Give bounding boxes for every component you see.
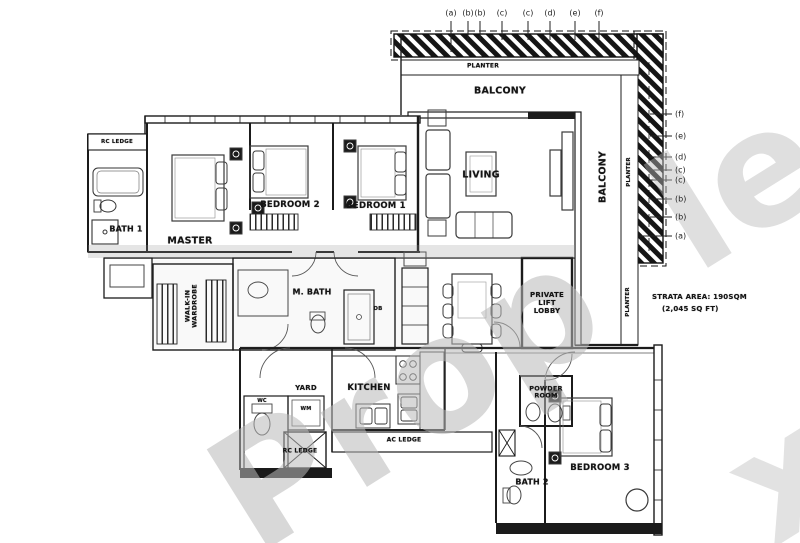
callout-top-d: (d) <box>544 9 555 18</box>
callout-top-e: (e) <box>569 9 580 18</box>
label-kitchen: KITCHEN <box>347 384 390 394</box>
label-planter-top: PLANTER <box>467 64 499 71</box>
label-wc: WC <box>257 399 267 405</box>
callout-top-c1: (c) <box>497 9 508 18</box>
annotation-line2: (2,045 SQ FT) <box>662 305 719 313</box>
label-bath1: BATH 1 <box>109 224 142 233</box>
callout-right-b2: (b) <box>675 213 686 222</box>
bedroom3-furniture <box>549 390 648 511</box>
label-planter-right-upper: PLANTER <box>626 157 632 187</box>
label-yard: YARD <box>295 384 317 392</box>
bedroom1-bed <box>344 140 416 230</box>
callout-right-a: (a) <box>675 232 686 241</box>
annotation-line1: STRATA AREA: 190SQM <box>652 293 747 301</box>
label-walk-in-wardrobe: WALK-IN WARDROBE <box>185 284 200 328</box>
label-balcony-right: BALCONY <box>599 151 610 203</box>
label-ac-ledge: AC LEDGE <box>387 438 422 445</box>
label-wm: WM <box>301 407 312 413</box>
label-bedroom3: BEDROOM 3 <box>570 464 629 474</box>
label-bath2: BATH 2 <box>515 477 548 486</box>
label-private-lift-lobby: PRIVATE LIFT LOBBY <box>530 291 564 315</box>
label-bedroom1: BEDROOM 1 <box>346 202 405 212</box>
callout-right-b1: (b) <box>675 195 686 204</box>
callout-top-a: (a) <box>445 9 456 18</box>
label-rc-ledge-top: RC LEDGE <box>101 139 133 145</box>
callout-right-c2: (c) <box>675 176 686 185</box>
bedroom3-block <box>496 345 662 535</box>
callout-top-f: (f) <box>594 9 603 18</box>
label-planter-right-lower: PLANTER <box>625 287 631 317</box>
callout-top-c2: (c) <box>523 9 534 18</box>
dining-set <box>443 274 501 352</box>
callout-top-b2: (b) <box>474 9 485 18</box>
master-bed <box>172 148 242 234</box>
floorplan-drawing <box>0 0 800 543</box>
label-living: LIVING <box>462 171 499 182</box>
callout-right-f: (f) <box>675 110 684 119</box>
label-balcony-top: BALCONY <box>474 87 526 98</box>
lower-wing-walls <box>240 348 662 478</box>
label-db: DB <box>373 306 382 312</box>
callout-right-c1: (c) <box>675 166 686 175</box>
callout-top-b1: (b) <box>462 9 473 18</box>
label-master: MASTER <box>167 237 212 248</box>
label-powder-room: POWDER ROOM <box>529 386 563 401</box>
label-bedroom2: BEDROOM 2 <box>260 201 319 211</box>
callout-right-e: (e) <box>675 132 686 141</box>
label-m-bath: M. BATH <box>292 287 331 296</box>
label-rc-ledge-bottom: RC LEDGE <box>283 449 318 456</box>
callout-right-d: (d) <box>675 153 686 162</box>
floorplan-page: Prop le x (a) (b) (b) (c) (c) (d) (e) (f… <box>0 0 800 543</box>
bedroom2-bed <box>250 146 308 230</box>
